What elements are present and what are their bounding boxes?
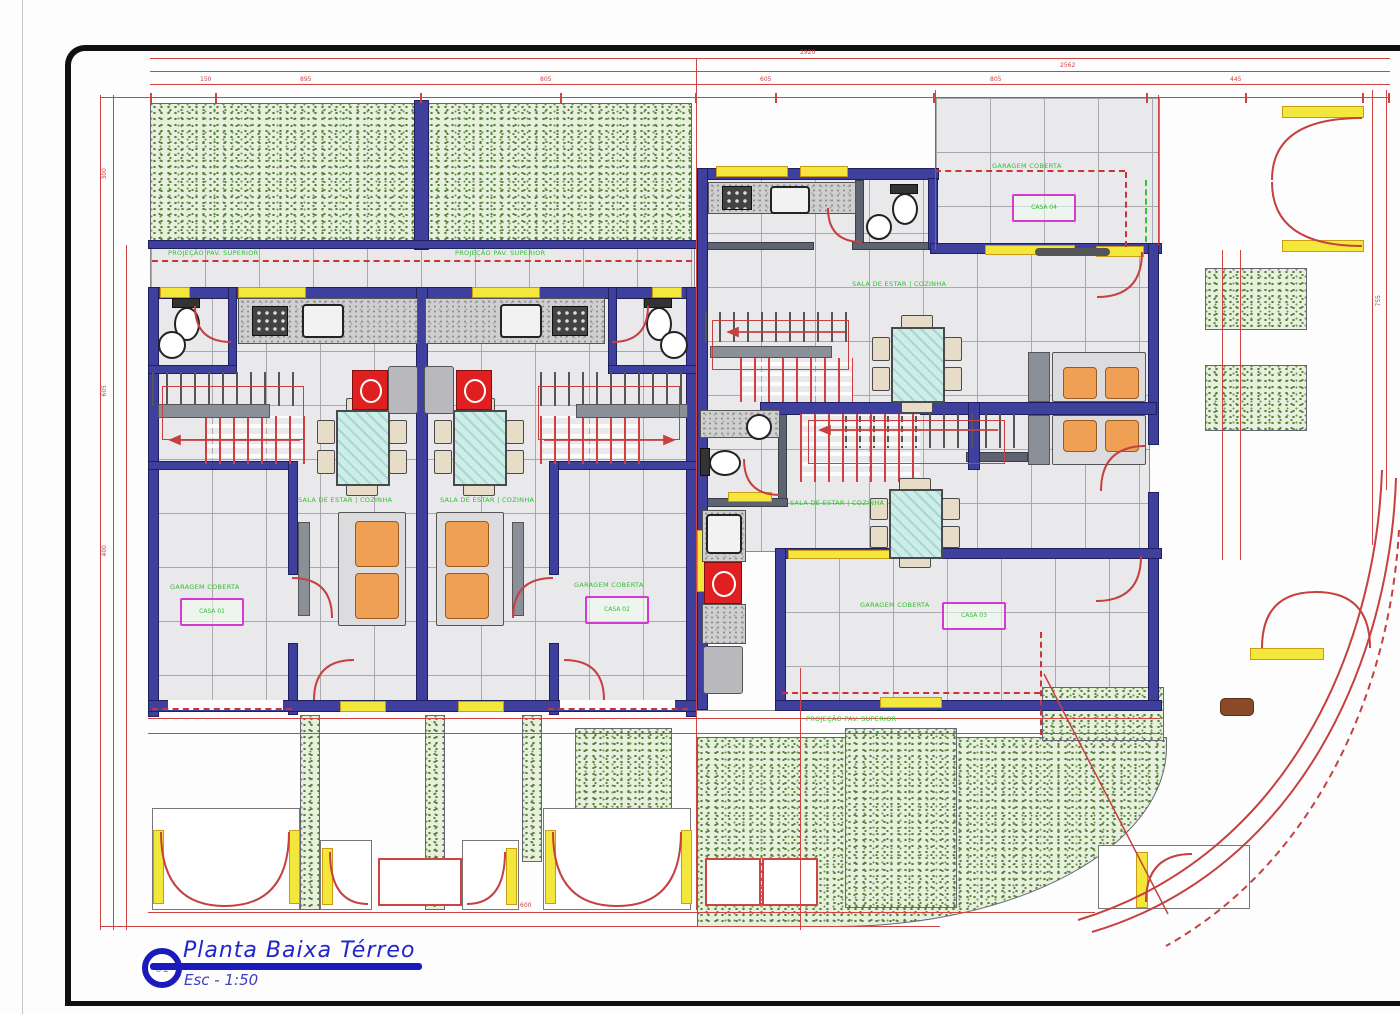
toilet-bowl-ur [892,193,918,225]
lavabo-toilet-bowl [709,450,741,476]
label-sala-lr: SALA DE ESTAR | COZINHA [790,500,884,507]
dim-tick [1388,93,1390,103]
dim-line-v [1158,95,1159,245]
window-a-front [340,701,386,712]
wall-garden-divider [414,100,429,250]
side-table-ur-l [1028,352,1050,402]
dim-line [150,71,1390,72]
sofa-cushion [1063,367,1097,399]
dim-text-overall: 2920 [800,50,815,56]
label-garage-a: GARAGEM COBERTA [170,584,240,591]
stair-a-guide [162,386,304,440]
dim-line [150,84,1390,85]
drawing-scale: Esc - 1:50 [184,971,258,989]
projection-dash-lr [782,692,1040,694]
sink-kitchen-ur [770,186,810,214]
wall-ur-row-bottom-1 [700,242,814,250]
ped-b-post [506,848,517,905]
meter-box-a [378,858,462,906]
stair-lr-guide [808,420,1005,464]
label-projection-lr: PROJEÇÃO PAV. SUPERIOR [806,716,896,723]
dim-tick [560,93,562,103]
wall-garage-a-1 [288,461,298,575]
window-ur-kitchen-1 [716,166,788,177]
window-ur-kitchen-2 [800,166,848,177]
projection-dash-left [152,260,692,262]
glass-table [891,327,945,403]
chair [389,420,407,444]
hedge-right-1 [1205,268,1307,330]
chair [389,450,407,474]
window-b-kitchen [472,287,540,298]
dim-line-v [1386,90,1387,490]
wall-garden-bottom [148,240,697,249]
garage-a-dash [152,708,292,710]
dim-tick [695,93,697,103]
title-underline [150,963,422,970]
chair [434,420,452,444]
ped-a-post [322,848,333,905]
dim-text-v: 300 [102,168,108,179]
burners-ur [722,186,752,210]
label-sala-a: SALA DE ESTAR | COZINHA [298,497,392,504]
planter-corner [1220,698,1254,716]
garden-unit-b [427,103,692,247]
chair [872,367,890,391]
driveway-a [152,808,300,910]
tv-console-a [298,522,310,616]
hedge-right-2 [1205,365,1307,431]
hedge-front-3 [522,715,542,862]
tv-wall-ur [1035,248,1110,256]
garden-unit-a [150,103,416,247]
casa-box-02: CASA 02 [585,596,649,624]
sofa-cushion [355,521,399,567]
dim-tick [215,93,217,103]
dim-line [100,97,1390,98]
stair-b-guide [538,386,680,440]
dim-text-v: 605 [102,385,108,396]
chair [317,420,335,444]
wall-lower-garage-left [775,548,786,710]
sofa-lr [1052,415,1146,465]
sill-gate-tr-top [1282,106,1364,118]
dim-text: 150 [200,77,211,83]
gate-frame-1 [705,858,761,906]
glass-table [889,489,943,559]
glass-table [453,410,507,486]
dim-text-v: 755 [1376,295,1382,306]
wall-right-bottom [775,700,1162,711]
burners-b [552,306,588,336]
dim-text: 2562 [1060,63,1075,69]
garage-b-dash [548,708,688,710]
green-dash-v [1145,180,1147,242]
sill-lavabo [728,492,772,502]
chair [506,450,524,474]
dim-line-v [1240,250,1241,560]
sofa-cushion [1105,420,1139,452]
driveway-b [543,808,691,910]
burners-a [252,306,288,336]
wall-bath-b [608,287,617,374]
dim-line-v [100,95,101,930]
stove-a [352,370,388,410]
sofa-a [338,512,406,626]
label-projection-a: PROJEÇÃO PAV. SUPERIOR [168,250,258,257]
dim-line-v [1372,90,1373,545]
dim-tick [420,93,422,103]
wall-garage-b-1 [549,461,559,575]
dining-set-ur [870,315,962,411]
dim-text: 805 [540,77,551,83]
tv-console-b [512,522,524,616]
dim-text: 805 [990,77,1001,83]
label-garage-lr: GARAGEM COBERTA [860,602,930,609]
wall-bath-ur-right [928,178,938,250]
casa-box-01: CASA 01 [180,598,244,626]
wall-bath-a [228,287,237,374]
page-edge-line [22,0,23,1014]
dim-text: 600 [520,903,531,909]
sink-kitchen-a [302,304,344,338]
dim-line [150,58,1390,59]
chair [944,337,962,361]
ped-r-post [1136,852,1148,908]
fridge-b [424,366,454,414]
window-a-bath [160,287,190,298]
chair [870,526,888,548]
stove-b [456,370,492,410]
drawing-title: Planta Baixa Térreo [183,938,415,963]
fridge-lk [703,646,743,694]
driveway-r [1098,845,1250,909]
projection-dash-tr [935,170,1125,172]
side-table-lr-l [1028,415,1050,465]
floor-plan-sheet: PROJEÇÃO PAV. SUPERIOR PROJEÇÃO PAV. SUP… [0,0,1400,1014]
dim-tick [775,93,777,103]
window-b-bath [652,287,682,298]
sink-lk [706,514,742,554]
hedge-front-1 [300,715,320,910]
dim-tick [1362,93,1364,103]
wall-right-outer-right-2 [1148,492,1159,710]
wall-ab-divider [416,287,428,707]
chair [942,526,960,548]
sofa-ur [1052,352,1146,402]
dim-line [148,718,1160,719]
dim-line [148,912,1095,913]
sill-gate-r-lower [1250,648,1324,660]
chair [942,498,960,520]
counter-lk-2 [702,604,746,644]
chair [944,367,962,391]
projection-dash-lr-v [1040,632,1042,735]
label-garage-b: GARAGEM COBERTA [574,582,644,589]
window-b-front [458,701,504,712]
sofa-cushion [1063,420,1097,452]
chair [317,450,335,474]
wall-ur-row-bottom-2 [852,242,938,250]
gate-b-post-l [545,830,556,904]
label-projection-b: PROJEÇÃO PAV. SUPERIOR [455,250,545,257]
projection-dash-tr-v [1125,172,1127,247]
dim-text: 445 [1230,77,1241,83]
dim-tick [1146,93,1148,103]
stair-ur-guide [712,320,849,370]
dim-tick [933,93,935,103]
sink-bath-a [158,331,186,359]
label-sala-b: SALA DE ESTAR | COZINHA [440,497,534,504]
dim-line [148,733,1160,734]
wall-kitchen-bath-ur [855,180,864,247]
chair [872,337,890,361]
dim-line-v [800,668,801,930]
dim-tick [1245,93,1247,103]
dim-line-v [1222,250,1223,560]
sink-bath-b [660,331,688,359]
sofa-cushion [1105,367,1139,399]
lavabo-sink [746,414,772,440]
stove-lk [704,562,742,604]
label-sala-ur: SALA DE ESTAR | COZINHA [852,281,946,288]
gate-a-post-l [153,830,164,904]
sofa-cushion [445,521,489,567]
wall-left-outer [148,287,159,717]
sofa-cushion [355,573,399,619]
dining-set-lr [868,478,960,566]
gate-a-post-r [289,830,300,904]
label-garage-tr: GARAGEM COBERTA [992,163,1062,170]
casa-box-03: CASA 03 [942,602,1006,630]
sofa-b [436,512,504,626]
gate-frame-2 [762,858,818,906]
dim-line-v [113,95,114,930]
sofa-cushion [445,573,489,619]
sink-bath-ur [866,214,892,240]
window-a-kitchen [238,287,306,298]
fridge-a [388,366,418,414]
window-right-bottom [880,697,942,708]
dim-line [100,926,940,927]
dim-line-v [696,58,697,910]
dim-text: 605 [760,77,771,83]
dim-text-v: 400 [102,545,108,556]
gate-b-post-r [681,830,692,904]
dim-text: 895 [300,77,311,83]
hedge-front-tall-2 [845,728,957,908]
casa-box-04: CASA 04 [1012,194,1076,222]
sink-kitchen-b [500,304,542,338]
chair [506,420,524,444]
dim-tick [150,93,152,103]
chair [434,450,452,474]
glass-table [336,410,390,486]
sill-gate-tr-bottom [1282,240,1364,252]
dim-line-v [126,245,127,930]
